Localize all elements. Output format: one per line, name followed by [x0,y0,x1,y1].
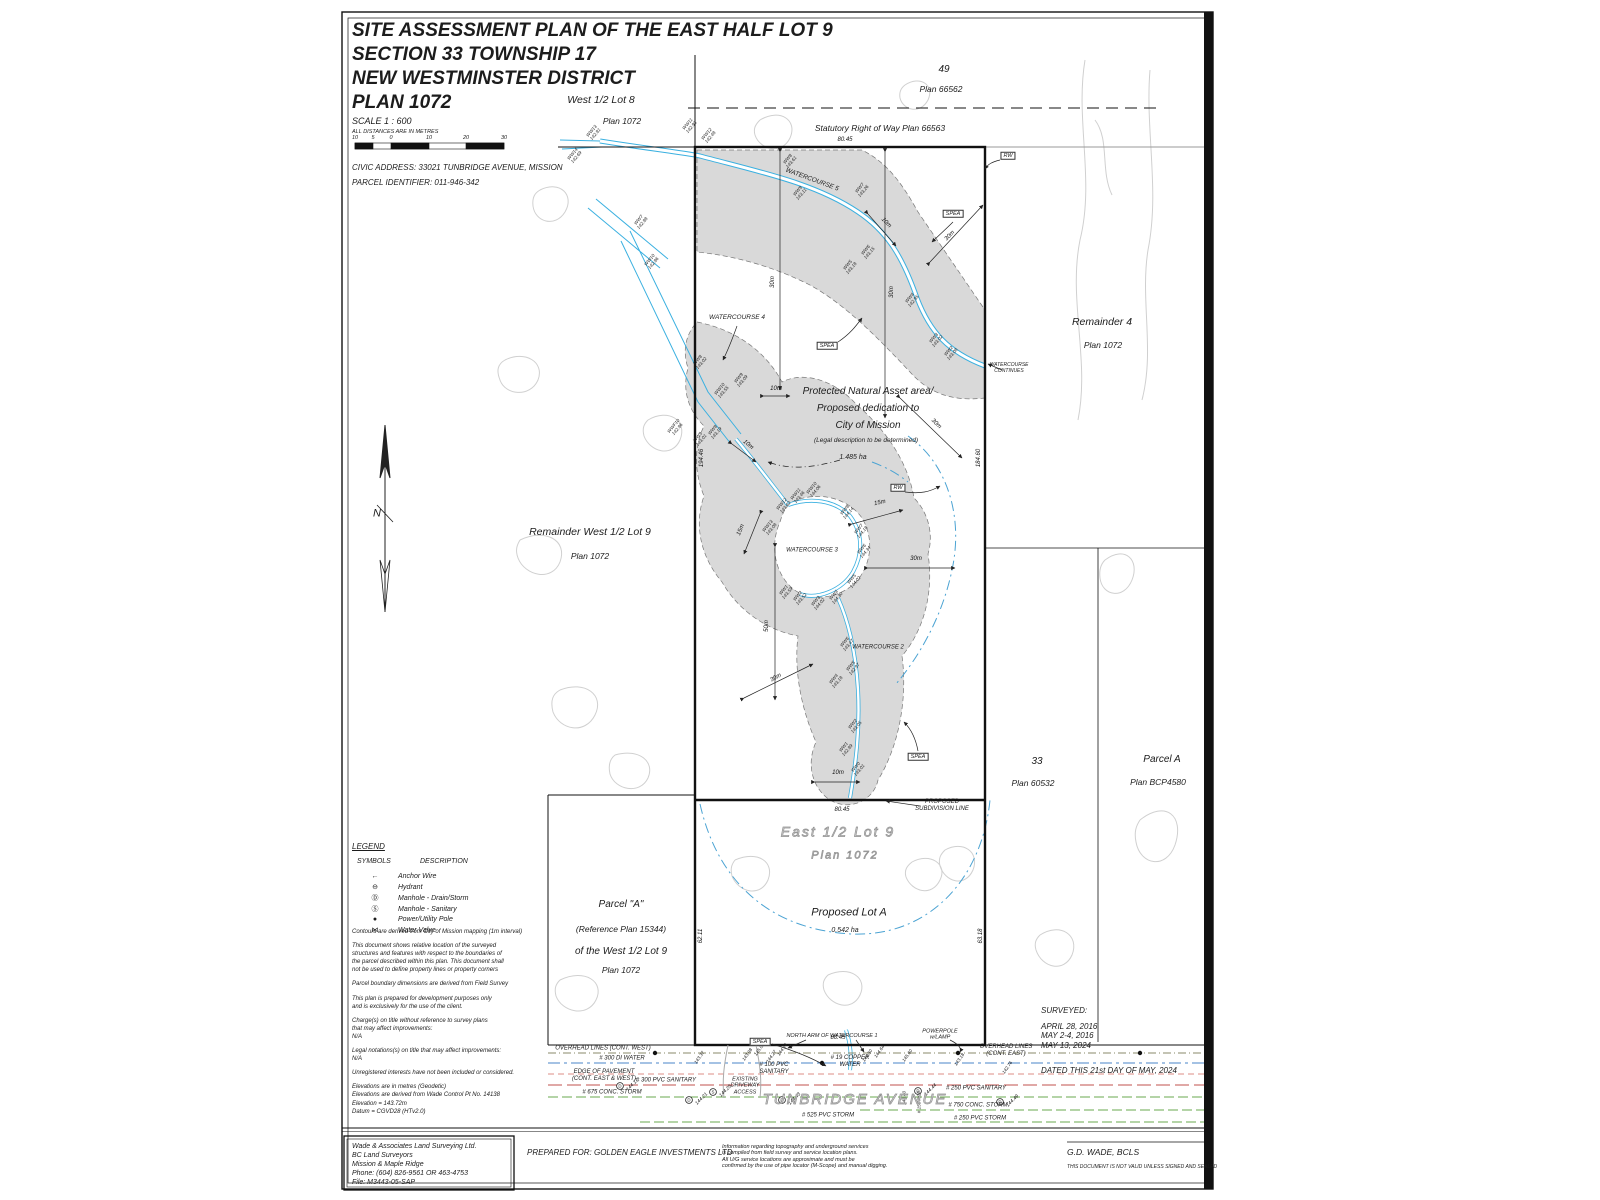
contour-line [939,846,974,881]
scale-tick: 10 [426,135,432,141]
label-water300: # 300 DI WATER [599,1055,644,1062]
manhole-letter: D [618,1084,621,1089]
label-statutory-row: Statutory Right of Way Plan 66563 [815,123,945,133]
legend-symbol: ⊖ [352,883,398,894]
label-parcel-a-ref-2: (Reference Plan 15344) [576,924,666,934]
contour-line [1142,70,1153,400]
contour-line [1095,120,1112,195]
civic-address: CIVIC ADDRESS: 33021 TUNBRIDGE AVENUE, M… [352,163,563,172]
scale-tick: 10 [352,135,358,141]
validity-note: THIS DOCUMENT IS NOT VALID UNLESS SIGNED… [1067,1165,1217,1171]
rw-box-1: RW [1000,152,1015,160]
north-letter: N [373,508,381,521]
label-east-half-lot9: East 1/2 Lot 9 [781,824,895,841]
pna-line3: City of Mission [835,420,900,432]
rw-box-2: RW [890,484,905,492]
legend-heading: LEGEND [352,842,385,851]
contour-line [731,856,769,891]
note-paragraph: Legal notations(s) on title that may aff… [352,1047,528,1063]
survey-date: MAY 2-4, 2016 [1041,1031,1097,1040]
note-paragraph: Charge(s) on title without reference to … [352,1017,528,1041]
dimension-label: 30m [910,556,922,562]
dimension-label: 80.45 [837,137,852,143]
note-paragraph: Parcel boundary dimensions are derived f… [352,980,528,988]
pna-area: 1.485 ha [839,454,866,462]
contour-line [1100,554,1134,593]
legend-symbols-header: SYMBOLS [357,858,391,866]
contour-line [533,187,568,222]
firm-line: Phone: (604) 826-9561 OR 463-4753 [352,1169,510,1178]
label-lot33: 33 [1031,756,1042,768]
label-powerpole: POWERPOLE w/LAMP [922,1029,957,1042]
dimension-label: 10m [770,386,782,392]
legend-label: Manhole - Sanitary [398,905,527,916]
contour-line [905,858,942,890]
manhole-letter: D [687,1098,690,1103]
contour-line [517,535,562,574]
note-paragraph: Unregistered interests have not been inc… [352,1069,528,1077]
label-storm250: # 250 PVC STORM [954,1115,1006,1122]
scale-tick: 0 [389,135,392,141]
label-remainder4: Remainder 4 [1072,316,1132,328]
label-storm750: # 750 CONC. STORM [948,1102,1007,1109]
site-plan-sheet: { "title_block": { "line1": "SITE ASSESS… [0,0,1600,1200]
legend-item: ⒹManhole - Drain/Storm [352,894,527,905]
firm-line: Wade & Associates Land Surveying Ltd. [352,1142,510,1151]
plan-title-line1: SITE ASSESSMENT PLAN OF THE EAST HALF LO… [352,20,833,42]
dimension-label: 30m [889,286,895,298]
label-edge-of-pavement: EDGE OF PAVEMENT (CONT. EAST & WEST) [572,1069,636,1083]
label-remainder4-plan: Plan 1072 [1084,340,1122,350]
note-paragraph: Contours are derived from City of Missio… [352,928,528,936]
scale-label: SCALE 1 : 600 [352,116,412,127]
street-name: TUNBRIDGE AVENUE [763,1091,948,1109]
dated-line: DATED THIS 21st DAY OF MAY, 2024 [1041,1066,1177,1075]
label-lot33-plan: Plan 60532 [1011,778,1054,788]
label-watercourse4: WATERCOURSE 4 [709,314,765,322]
prepared-for: PREPARED FOR: GOLDEN EAGLE INVESTMENTS L… [527,1148,733,1157]
legend-label: Power/Utility Pole [398,915,527,926]
note-paragraph: This document shows relative location of… [352,942,528,974]
dimension-label: 50m [764,620,770,632]
label-copper19: # 19 COPPER WATER [831,1055,870,1069]
scale-tick: 30 [501,135,507,141]
spea-box-4: SPEA [750,1038,771,1046]
label-overhead-west: OVERHEAD LINES (CONT. WEST) [555,1045,650,1052]
spea-box-1: SPEA [943,210,964,218]
label-west-half-lot8: West 1/2 Lot 8 [567,94,635,106]
contour-line [609,753,649,788]
label-storm675: # 675 CONC. STORM [582,1089,641,1096]
legend-symbol: ← [352,872,398,883]
plan-title-line3: NEW WESTMINSTER DISTRICT [352,68,635,90]
contour-line [555,976,598,1011]
scale-tick: 20 [463,135,469,141]
label-storm525: # 525 PVC STORM [802,1112,854,1119]
pna-line2: Proposed dedication to [817,403,919,415]
contour-line [1135,811,1177,862]
pole-icon [1138,1051,1142,1055]
label-parcel-a-ref-4: Plan 1072 [602,965,640,975]
survey-date: MAY 13, 2024 [1041,1041,1097,1050]
label-watercourse-continues: WATERCOURSE CONTINUES [990,363,1029,375]
legend-item: ●Power/Utility Pole [352,915,527,926]
legend-description-header: DESCRIPTION [420,858,468,866]
label-san250: # 250 PVC SANITARY [946,1085,1006,1092]
label-west-half-lot8-plan: Plan 1072 [603,116,641,126]
scale-tick: 5 [371,135,374,141]
label-parcel-a-ref-3: of the West 1/2 Lot 9 [575,946,667,958]
label-san300: # 300 PVC SANITARY [636,1077,696,1084]
survey-notes: Contours are derived from City of Missio… [352,928,528,1122]
scale-bar [355,143,504,149]
contour-line [498,356,539,392]
legend-label: Manhole - Drain/Storm [398,894,527,905]
pole-icon [653,1051,657,1055]
pna-line1: Protected Natural Asset area/ [803,386,934,398]
dimension-label: 10m [832,770,844,776]
label-lot49-plan: Plan 66562 [919,84,962,94]
parcel-identifier: PARCEL IDENTIFIER: 011-946-342 [352,178,479,187]
legend-item: ⊖Hydrant [352,883,527,894]
proposed-subdivision-label: PROPOSED SUBDIVISION LINE [915,799,969,813]
label-east-half-lot9-plan: Plan 1072 [811,850,879,863]
note-paragraph: This plan is prepared for development pu… [352,995,528,1011]
label-driveway-access: EXISTING DRIVEWAY ACCESS [731,1076,760,1095]
label-parcel-a-bcp-plan: Plan BCP4580 [1130,777,1186,787]
plan-title-line4: PLAN 1072 [352,92,451,114]
legend-item: ⓈManhole - Sanitary [352,905,527,916]
pna-line4: (Legal description to be determined) [814,437,918,445]
dimension-label: 63.18 [978,928,984,943]
contour-line [552,687,598,728]
survey-dates: APRIL 28, 2016MAY 2-4, 2016MAY 13, 2024 [1041,1022,1097,1050]
dimension-label: 62.11 [698,929,704,944]
spea-box-3: SPEA [908,753,929,761]
spea-corridor-areas [685,150,985,805]
label-lot49: 49 [938,64,949,76]
legend-symbol: Ⓢ [352,905,398,916]
contour-line [1035,930,1074,966]
surveyed-heading: SURVEYED: [1041,1006,1087,1015]
dimension-label: 80.45 [834,807,849,813]
note-paragraph: Elevations are in metres (Geodetic) Elev… [352,1083,528,1115]
legend-label: Hydrant [398,883,527,894]
label-san100: # 100 PVC SANITARY [759,1062,788,1076]
legend-symbol: ● [352,915,398,926]
label-proposed-lot-a: Proposed Lot A [811,907,886,920]
dimension-label: 194.46 [699,449,705,467]
firm-line: File: M3443-05-SAP [352,1178,510,1187]
firm-line: BC Land Surveyors [352,1151,510,1160]
info-note: Information regarding topography and und… [722,1144,887,1170]
label-parcel-a-ref-1: Parcel "A" [599,899,644,911]
contour-line [1076,60,1086,420]
firm-line: Mission & Maple Ridge [352,1160,510,1169]
label-watercourse3: WATERCOURSE 3 [786,547,838,554]
spea-box-2: SPEA [817,342,838,350]
label-remainder-west-lot9: Remainder West 1/2 Lot 9 [529,526,651,538]
legend-symbol: Ⓓ [352,894,398,905]
dimension-label: 184.60 [976,449,982,467]
plan-title-line2: SECTION 33 TOWNSHIP 17 [352,44,596,66]
dimension-label: 30m [770,276,776,288]
label-parcel-a-bcp: Parcel A [1143,754,1180,766]
manhole-letter: S [712,1090,715,1095]
firm-box: Wade & Associates Land Surveying Ltd.BC … [352,1142,510,1187]
label-remainder-west-lot9-plan: Plan 1072 [571,551,609,561]
contour-line [823,972,862,1006]
legend-item: ←Anchor Wire [352,872,527,883]
label-north-arm-watercourse1: NORTH ARM OF WATERCOURSE 1 [786,1033,877,1039]
label-watercourse2: WATERCOURSE 2 [852,644,904,651]
label-proposed-lot-a-area: 0.542 ha [831,927,858,935]
surveyor-name: G.D. WADE, BCLS [1067,1147,1139,1157]
legend-label: Anchor Wire [398,872,527,883]
survey-date: APRIL 28, 2016 [1041,1022,1097,1031]
contour-line [754,115,792,149]
label-overhead-east: OVERHEAD LINES (CONT. EAST) [980,1044,1033,1058]
